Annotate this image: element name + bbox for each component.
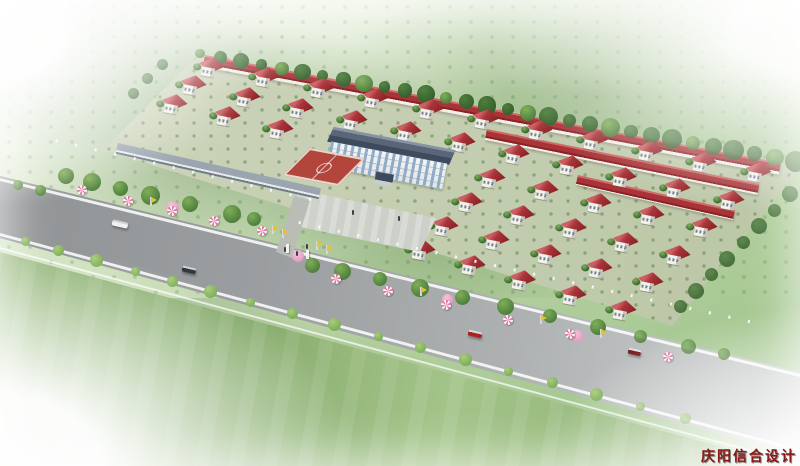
building-entrance-porch	[374, 171, 394, 186]
watermark-text: 庆阳信合设计	[701, 446, 797, 466]
entrance-gate-post	[286, 244, 289, 253]
entrance-gate-post	[306, 250, 309, 259]
aerial-render-canvas: 庆阳信合设计	[0, 0, 800, 466]
